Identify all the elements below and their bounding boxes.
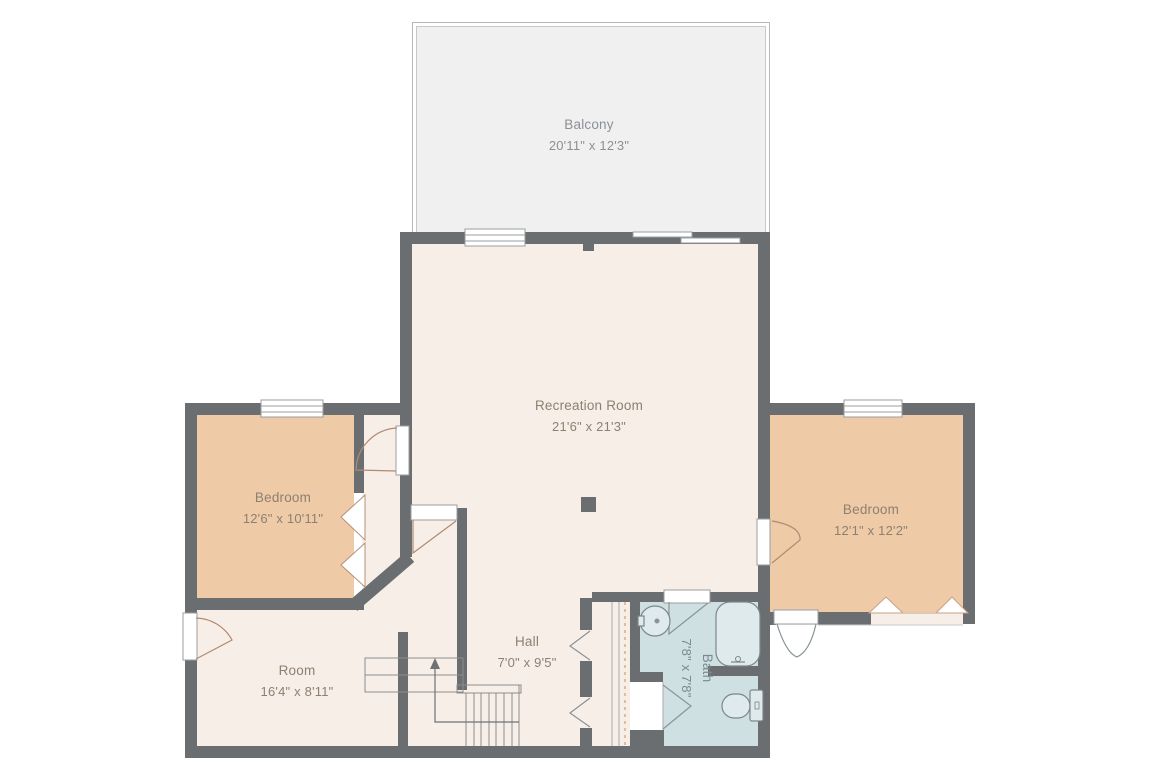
wall-segment (758, 232, 770, 519)
room-dims: 12'1" x 12'2" (834, 520, 908, 541)
room-hall-floor (197, 602, 592, 746)
door-leaf (664, 590, 710, 603)
wall-segment (457, 520, 467, 690)
structural-post (583, 244, 594, 251)
room-name: Room (261, 660, 334, 681)
bath-label: Bath 7'8" x 7'8" (676, 638, 718, 697)
structural-post (581, 497, 596, 512)
window-pane (261, 406, 323, 412)
door-leaf (411, 505, 457, 520)
toilet-bowl-icon (722, 694, 750, 718)
room-dims: 16'4" x 8'11" (261, 681, 334, 702)
wall-segment (580, 728, 592, 748)
room-label: Room 16'4" x 8'11" (261, 660, 334, 702)
wall-segment (185, 403, 197, 615)
wall-segment (398, 632, 408, 746)
wall-segment (630, 672, 663, 682)
room-name: Hall (497, 631, 556, 652)
room-dims: 7'8" x 7'8" (676, 638, 697, 697)
wall-segment (580, 598, 592, 630)
hall-label: Hall 7'0" x 9'5" (497, 631, 556, 673)
room-name: Bath (697, 638, 718, 697)
door-swing-bedroom-right-entry (777, 624, 816, 657)
wall-segment (630, 598, 640, 682)
wall-segment (630, 730, 664, 746)
room-dims: 21'6" x 21'3" (535, 416, 643, 437)
room-name: Balcony (549, 114, 629, 135)
balcony-label: Balcony 20'11" x 12'3" (549, 114, 629, 156)
sliding-door-panel (681, 238, 740, 243)
wall-segment (580, 661, 592, 697)
door-leaf (396, 426, 409, 475)
room-dims: 20'11" x 12'3" (549, 135, 629, 156)
linen-closet (630, 682, 663, 730)
floor-plan: Balcony 20'11" x 12'3" Recreation Room 2… (0, 0, 1162, 768)
wall-segment (818, 612, 871, 625)
window-pane (844, 406, 902, 412)
wall-segment (185, 659, 197, 758)
window-pane (465, 235, 525, 241)
sink-faucet-icon (638, 616, 644, 626)
bedroom-right-label: Bedroom 12'1" x 12'2" (834, 499, 908, 541)
door-leaf (774, 610, 818, 624)
room-dims: 12'6" x 10'11" (243, 508, 323, 529)
room-name: Bedroom (243, 487, 323, 508)
wall-segment (963, 403, 975, 624)
room-dims: 7'0" x 9'5" (497, 652, 556, 673)
wall-segment (185, 746, 770, 758)
wall-segment (185, 598, 364, 610)
recreation-room-label: Recreation Room 21'6" x 21'3" (535, 395, 643, 437)
door-leaf (757, 519, 770, 565)
sink-drain-icon (655, 619, 660, 624)
toilet-tank-icon (750, 690, 763, 721)
sliding-door-panel (633, 232, 692, 237)
room-name: Recreation Room (535, 395, 643, 416)
room-name: Bedroom (834, 499, 908, 520)
bedroom-left-label: Bedroom 12'6" x 10'11" (243, 487, 323, 529)
door-leaf (183, 613, 197, 660)
